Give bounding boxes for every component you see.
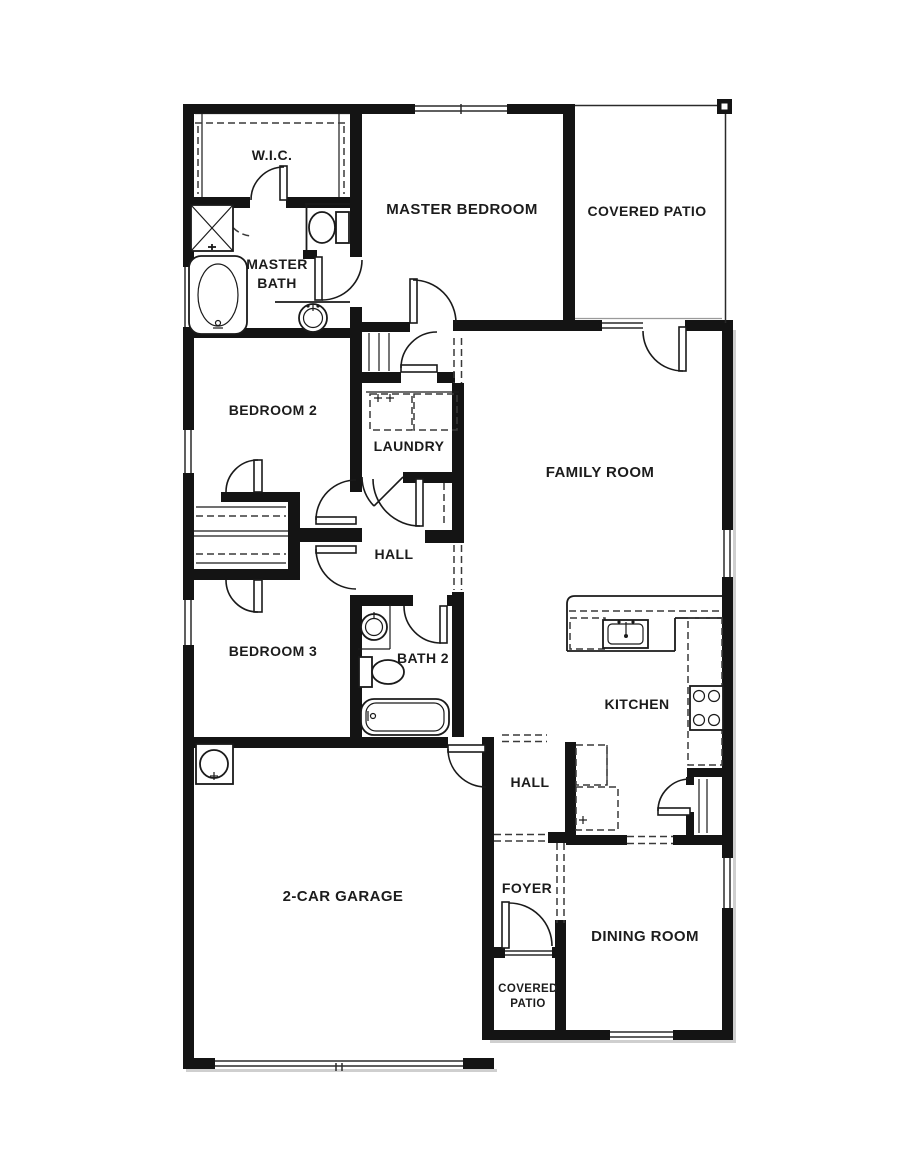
kitchen-sink-icon — [603, 620, 648, 648]
master-bath-door — [315, 257, 362, 300]
master-bedroom-door — [410, 279, 456, 323]
room-label-covered-patio-front-line1: COVERED — [498, 983, 558, 995]
floor-plan-page: W.I.C. MASTER BATH MASTER BEDROOM COVERE… — [0, 0, 900, 1165]
vestibule-linen-door — [401, 332, 437, 372]
washer-dryer-icons — [366, 392, 459, 430]
pantry-door — [658, 779, 690, 815]
front-door — [502, 902, 552, 955]
room-label-bedroom3: BEDROOM 3 — [229, 643, 317, 659]
room-label-master-bath-line1: MASTER — [246, 256, 308, 272]
room-label-kitchen: KITCHEN — [604, 696, 669, 712]
floor-plan-drawing: W.I.C. MASTER BATH MASTER BEDROOM COVERE… — [0, 0, 900, 1165]
hall-closet-door — [373, 479, 423, 526]
bedroom2-closet-door — [226, 460, 262, 492]
room-label-wic: W.I.C. — [252, 147, 293, 163]
room-label-bath2: BATH 2 — [397, 650, 449, 666]
room-label-hall-rear: HALL — [511, 774, 550, 790]
bedroom3-closet-door — [226, 580, 262, 612]
room-label-covered-patio-front-line2: PATIO — [510, 998, 545, 1010]
dishwasher-icon — [570, 618, 605, 649]
room-label-family-room: FAMILY ROOM — [546, 464, 655, 481]
interior-walls — [183, 104, 733, 1032]
room-label-covered-patio-rear: COVERED PATIO — [587, 203, 706, 219]
room-label-dining-room: DINING ROOM — [591, 928, 699, 945]
room-label-bedroom2: BEDROOM 2 — [229, 402, 317, 418]
master-tub-icon — [189, 256, 247, 334]
room-label-garage: 2-CAR GARAGE — [283, 888, 404, 905]
wic-door — [251, 166, 287, 200]
room-label-foyer: FOYER — [502, 880, 552, 896]
laundry-door — [362, 477, 403, 506]
room-label-master-bath-line2: BATH — [257, 275, 296, 291]
patio-door — [643, 327, 686, 371]
exterior-walls — [183, 99, 733, 1071]
bath2-door — [404, 606, 447, 643]
room-labels: W.I.C. MASTER BATH MASTER BEDROOM COVERE… — [229, 147, 707, 1010]
garage-entry-door — [448, 745, 486, 787]
bedroom3-entry-door — [316, 546, 356, 589]
shower-icon — [191, 205, 233, 251]
master-sink-icon — [275, 302, 350, 332]
stove-icon — [690, 686, 723, 730]
room-label-laundry: LAUNDRY — [374, 438, 445, 454]
master-toilet-icon — [309, 212, 349, 243]
bath2-sink-icon — [358, 604, 390, 649]
water-heater-icon — [196, 744, 233, 784]
room-label-hall: HALL — [375, 546, 414, 562]
room-label-master-bedroom: MASTER BEDROOM — [386, 201, 537, 218]
bath2-tub-icon — [361, 699, 449, 735]
refrigerator-icon — [576, 745, 618, 830]
